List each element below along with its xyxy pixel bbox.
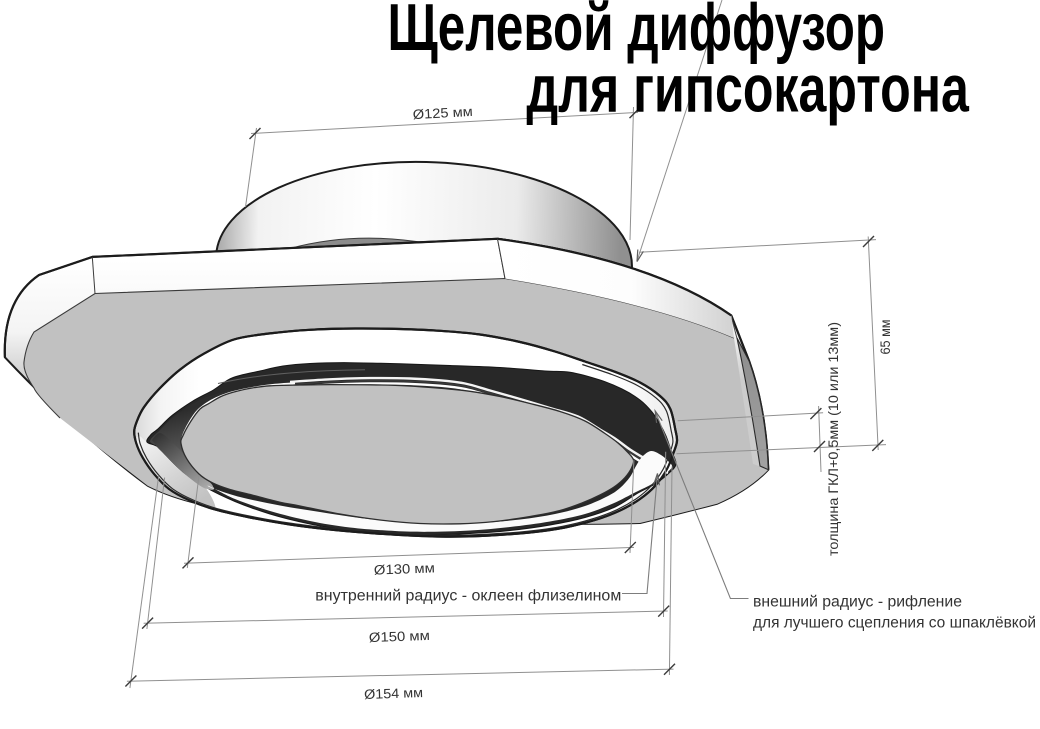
svg-text:толщина ГКЛ+0,5мм (10 или 13мм: толщина ГКЛ+0,5мм (10 или 13мм) [825, 322, 841, 556]
svg-text:внешний радиус - рифление: внешний радиус - рифление [753, 594, 962, 611]
svg-text:Ø154 мм: Ø154 мм [364, 685, 423, 702]
svg-text:внутренний радиус - оклеен фли: внутренний радиус - оклеен флизелином [315, 588, 621, 605]
svg-text:Ø150 мм: Ø150 мм [369, 628, 430, 645]
svg-text:65 мм: 65 мм [878, 320, 893, 355]
svg-text:для гипсокартона: для гипсокартона [526, 52, 969, 127]
svg-text:для лучшего сцепления со шпакл: для лучшего сцепления со шпаклёвкой [753, 615, 1036, 632]
svg-text:Ø130 мм: Ø130 мм [374, 560, 435, 577]
svg-text:Ø125 мм: Ø125 мм [412, 104, 473, 122]
